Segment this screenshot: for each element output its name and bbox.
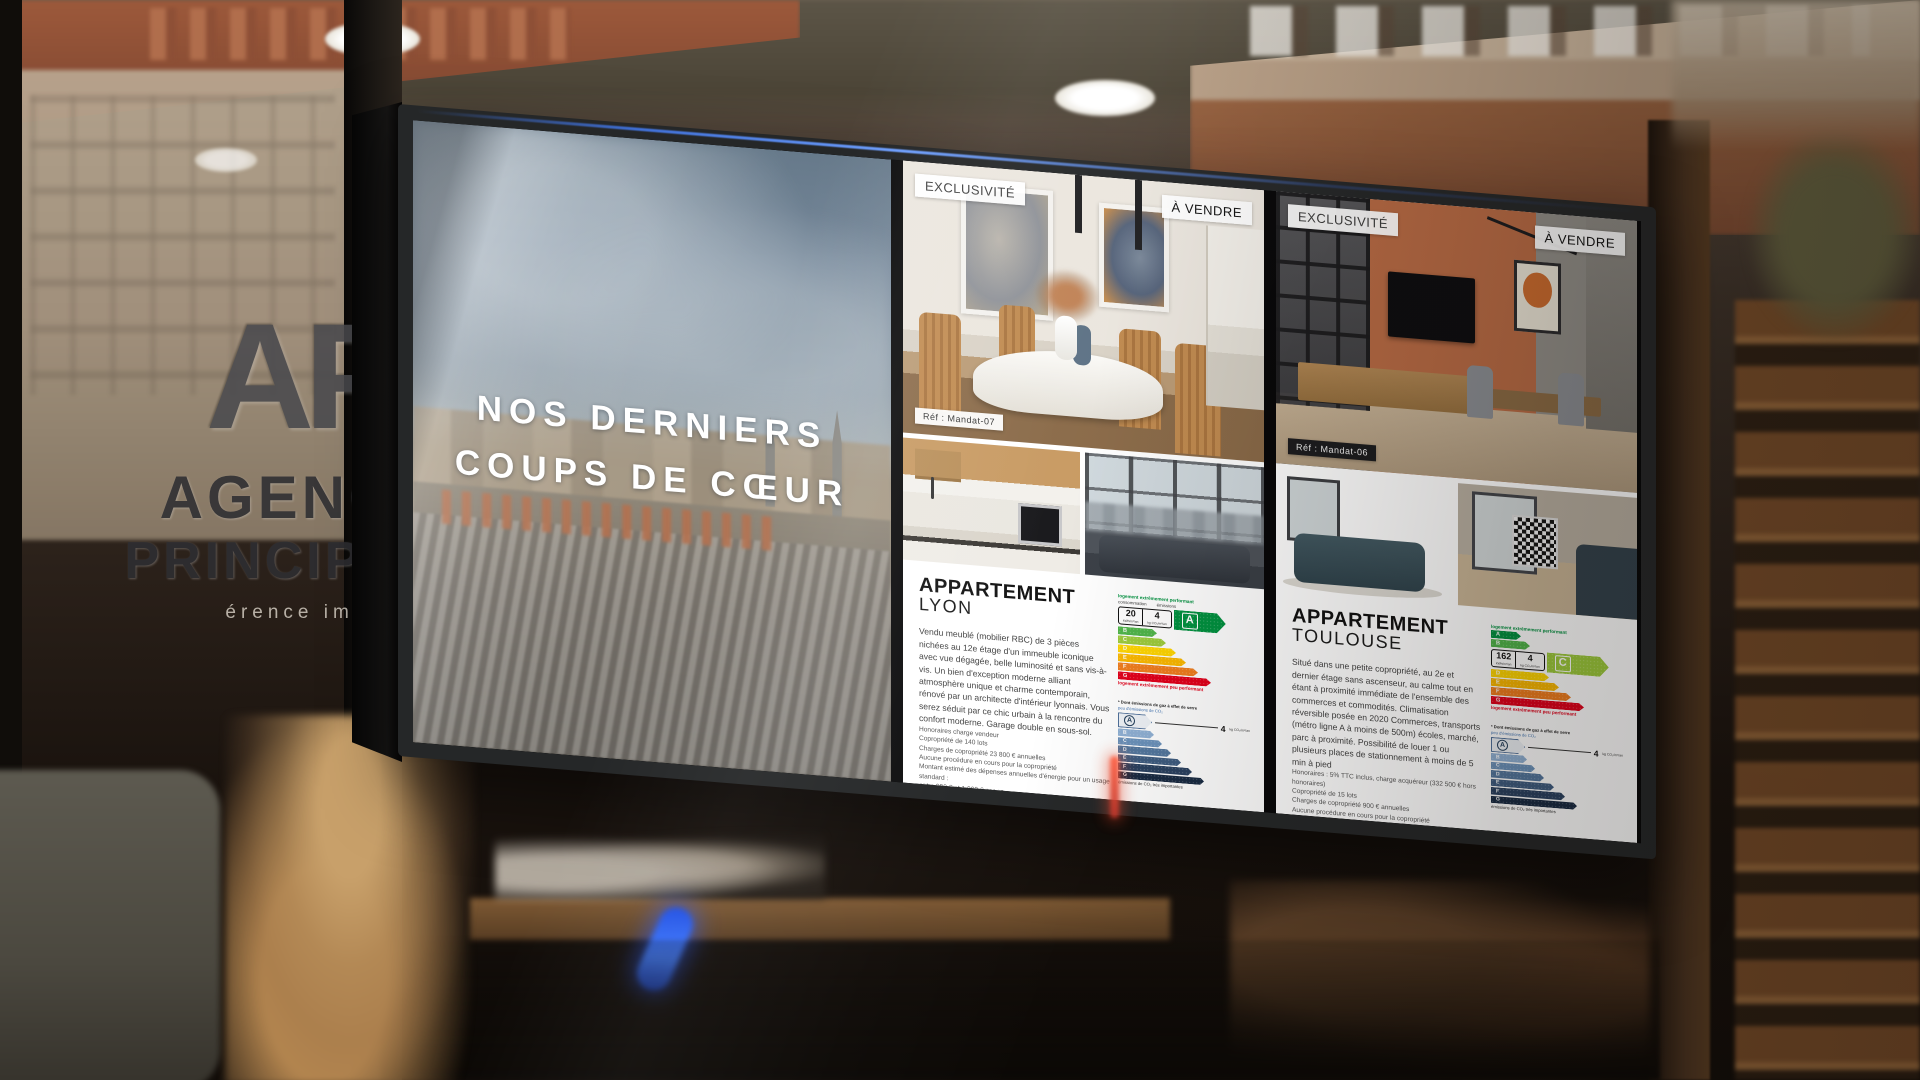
wood-furniture-reflection xyxy=(1230,880,1650,1080)
dpe-consumption-unit: kWh/m²/an xyxy=(1496,661,1511,666)
window-frame-edge xyxy=(0,0,22,1080)
dried-plant xyxy=(225,715,475,1080)
dpe-value-box: 20 kWh/m²/an 4 kg CO₂/m²/an xyxy=(1118,606,1172,628)
dpe-class-letter: C xyxy=(1555,656,1571,672)
ges-value: 4 xyxy=(1221,723,1226,733)
floor-shadow xyxy=(380,940,1660,1080)
blue-neon-reflection xyxy=(632,902,699,996)
storefront-scene: AP AGENCE PRINCIPALE érence imm xyxy=(0,0,1920,1080)
desk-objects-reflection xyxy=(495,830,825,900)
faucet xyxy=(931,476,934,498)
wall-art xyxy=(1099,203,1169,313)
chimneys-reflection xyxy=(150,8,570,60)
panel-heading: NOS DERNIERS COUPS DE CŒUR xyxy=(441,378,863,525)
ceiling-reflection xyxy=(0,0,1920,130)
ges-class-arrow: A xyxy=(1118,712,1152,730)
ges-unit: kg CO₂/m²/an xyxy=(1602,752,1623,758)
kitchen-glimpse xyxy=(1206,225,1264,410)
listing-description: Vendu meublé (mobilier RBC) de 3 pièces … xyxy=(919,625,1110,740)
heading-line1: NOS DERNIERS xyxy=(477,388,827,456)
wall-art xyxy=(1514,260,1561,335)
dpe-emissions-unit: kg CO₂/m²/an xyxy=(1520,663,1539,669)
kitchen-cabinet xyxy=(915,448,961,482)
ges-unit: kg CO₂/m²/an xyxy=(1229,727,1250,733)
warm-light-reflection xyxy=(1672,0,1920,150)
heading-line2: COUPS DE CŒUR xyxy=(455,443,849,514)
dpe-energy-label: logement extrêmement performant consomma… xyxy=(1118,593,1250,696)
ceiling-light-icon xyxy=(325,22,420,56)
dpe-consumption-unit: kWh/m²/an xyxy=(1123,618,1138,623)
chair xyxy=(919,312,961,413)
mandate-ref-badge: Réf : Mandat-07 xyxy=(915,408,1003,431)
couch-reflection xyxy=(0,770,220,1080)
ges-class-letter: A xyxy=(1124,715,1135,727)
ges-pointer-line xyxy=(1528,747,1591,753)
vase xyxy=(1055,315,1077,361)
dpe-class-letter: A xyxy=(1182,613,1198,629)
building-windows-right xyxy=(1250,6,1870,56)
for-sale-badge: À VENDRE xyxy=(1162,195,1252,225)
qr-style-artwork xyxy=(1512,514,1559,569)
ges-climate-label: * Dont émissions de gaz à effet de serre… xyxy=(1491,724,1623,820)
wood-slat-shelf xyxy=(1735,300,1920,1080)
digital-signage-screen: NOS DERNIERS COUPS DE CŒUR xyxy=(398,104,1656,859)
ges-class-arrow: A xyxy=(1491,737,1525,755)
red-light-reflection xyxy=(1110,756,1119,818)
dpe-value-box: 162 kWh/m²/an 4 kg CO₂/m²/an xyxy=(1491,649,1545,671)
pendant-light xyxy=(1135,180,1142,251)
rooftops xyxy=(413,481,891,782)
ceiling-light-icon xyxy=(1055,80,1155,116)
listing-photo-dining-room: EXCLUSIVITÉ À VENDRE Réf : Mandat-07 xyxy=(903,161,1264,463)
wall-tv xyxy=(1388,271,1475,343)
listing-description: Situé dans une petite copropriété, au 2e… xyxy=(1292,656,1483,784)
desk-reflection xyxy=(470,898,1170,940)
window-post-right xyxy=(1648,120,1710,1080)
listing-card-lyon: EXCLUSIVITÉ À VENDRE Réf : Mandat-07 xyxy=(903,161,1264,813)
listing-card-toulouse: EXCLUSIVITÉ À VENDRE Réf : Mandat-06 xyxy=(1276,191,1637,843)
listing-photo-kitchen xyxy=(903,438,1080,575)
ceiling-light-icon xyxy=(195,148,257,172)
listing-photo-living-room xyxy=(1085,452,1264,589)
dpe-emissions-unit: kg CO₂/m²/an xyxy=(1147,620,1166,626)
sofa xyxy=(1099,535,1249,584)
oven xyxy=(1018,503,1062,547)
pendant-light xyxy=(1075,175,1082,234)
dpe-class-arrow: A xyxy=(1174,610,1226,634)
legal-notes: Honoraires charge vendeur Copropriété de… xyxy=(919,725,1110,813)
ges-climate-label: * Dont émissions de gaz à effet de serre… xyxy=(1118,699,1250,795)
exclusivity-badge: EXCLUSIVITÉ xyxy=(915,174,1025,206)
chair xyxy=(1467,365,1493,419)
chair xyxy=(1558,372,1584,426)
listing-photo-window-art xyxy=(1458,483,1637,620)
ges-value: 4 xyxy=(1594,748,1599,758)
intro-panel: NOS DERNIERS COUPS DE CŒUR xyxy=(413,120,891,781)
legal-line: entre 900 € et 1 300 € par an xyxy=(1292,833,1483,843)
sofa xyxy=(1576,544,1637,620)
listing-photo-living-room: EXCLUSIVITÉ À VENDRE Réf : Mandat-06 xyxy=(1276,191,1637,493)
ges-pointer-line xyxy=(1155,722,1218,728)
zinc-roof-texture xyxy=(413,512,891,781)
plant-reflection xyxy=(1750,130,1920,340)
tv-side-bezel xyxy=(352,102,402,762)
dpe-energy-label: logement extrêmement performant A B 162 … xyxy=(1491,624,1623,721)
ges-class-letter: A xyxy=(1497,739,1508,751)
listing-photo-sofa xyxy=(1276,468,1453,605)
